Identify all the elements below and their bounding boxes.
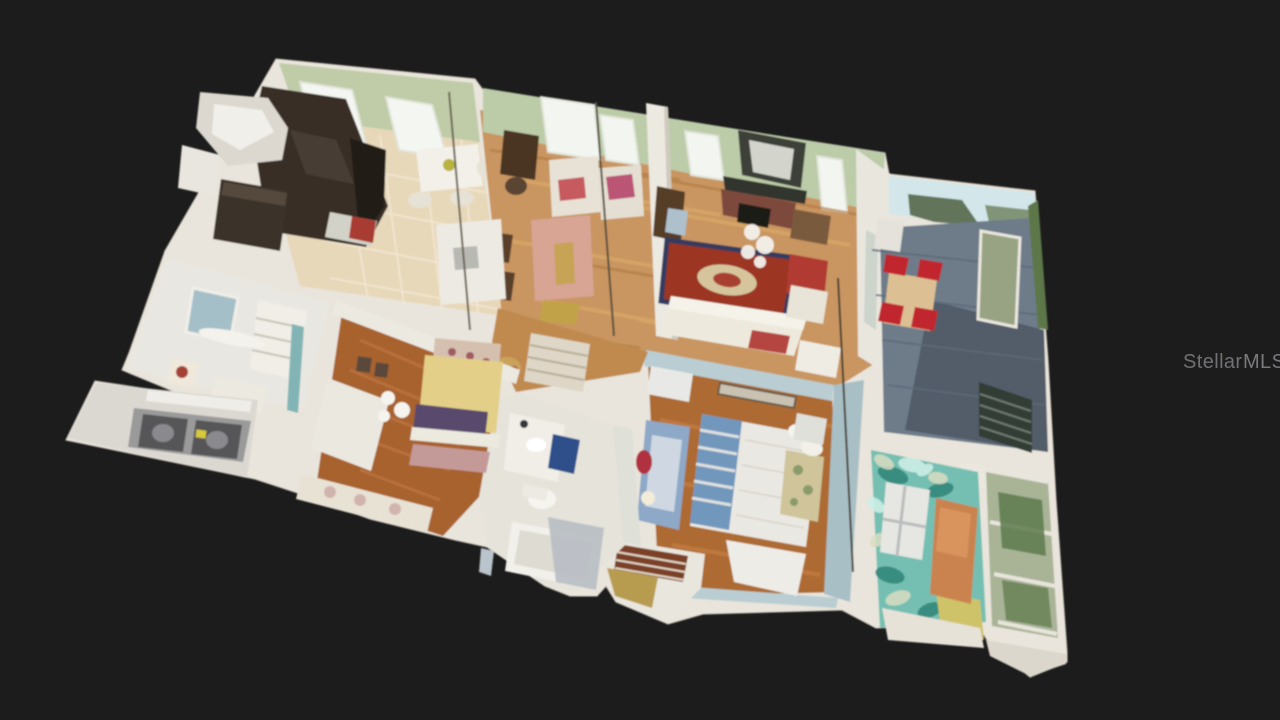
svg-text:Stellar: Stellar <box>1183 351 1243 373</box>
svg-text:MLS: MLS <box>1243 351 1280 373</box>
